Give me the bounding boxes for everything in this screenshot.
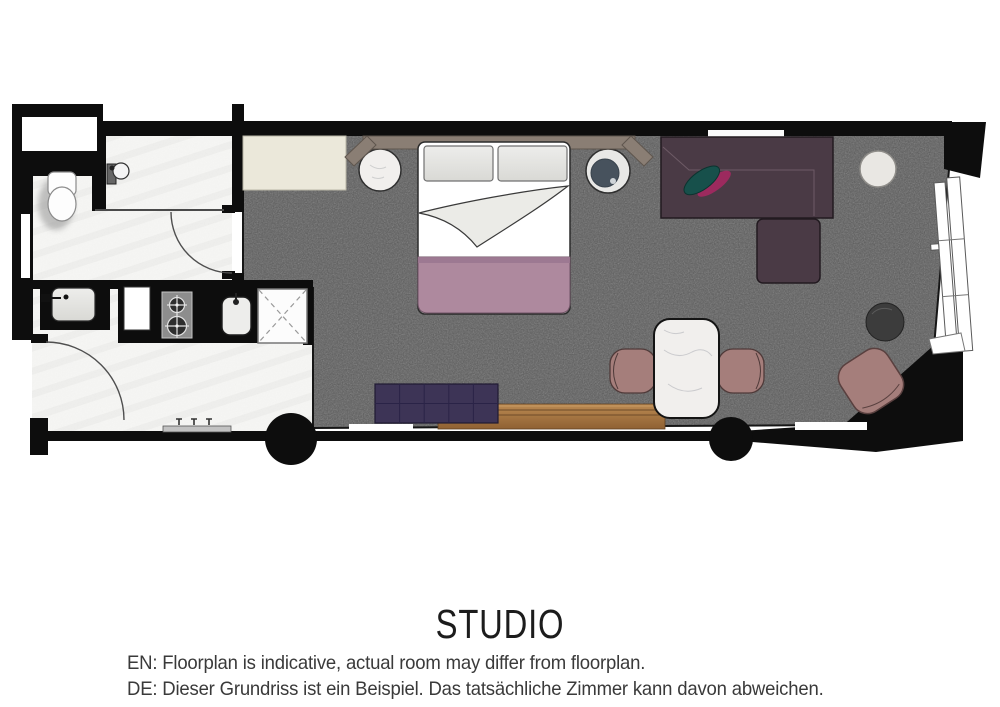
bathroom-niche (22, 117, 97, 151)
page-title: STUDIO (100, 604, 900, 645)
stove (162, 292, 192, 338)
fridge (124, 287, 150, 330)
page: STUDIO EN: Floorplan is indicative, actu… (0, 0, 1000, 707)
threshold (349, 424, 413, 431)
kitchen-sink (222, 293, 251, 335)
column (265, 413, 317, 465)
caption: STUDIO EN: Floorplan is indicative, actu… (0, 604, 1000, 645)
left-wall-window (21, 214, 30, 278)
ottoman (866, 303, 904, 341)
bed (418, 142, 570, 314)
dining-table (654, 319, 719, 418)
column (709, 417, 753, 461)
disclaimer-de: DE: Dieser Grundriss ist ein Beispiel. D… (127, 678, 824, 701)
dining-chair (610, 349, 656, 393)
threshold (795, 422, 867, 430)
bench-ottoman (375, 384, 498, 423)
shower (258, 289, 307, 343)
wardrobe (243, 136, 346, 190)
disclaimer-en: EN: Floorplan is indicative, actual room… (127, 652, 645, 675)
stool (586, 149, 630, 193)
blanket (418, 257, 570, 313)
side-table (860, 151, 896, 187)
dining-chair (718, 349, 764, 393)
floorplan (0, 0, 1000, 580)
